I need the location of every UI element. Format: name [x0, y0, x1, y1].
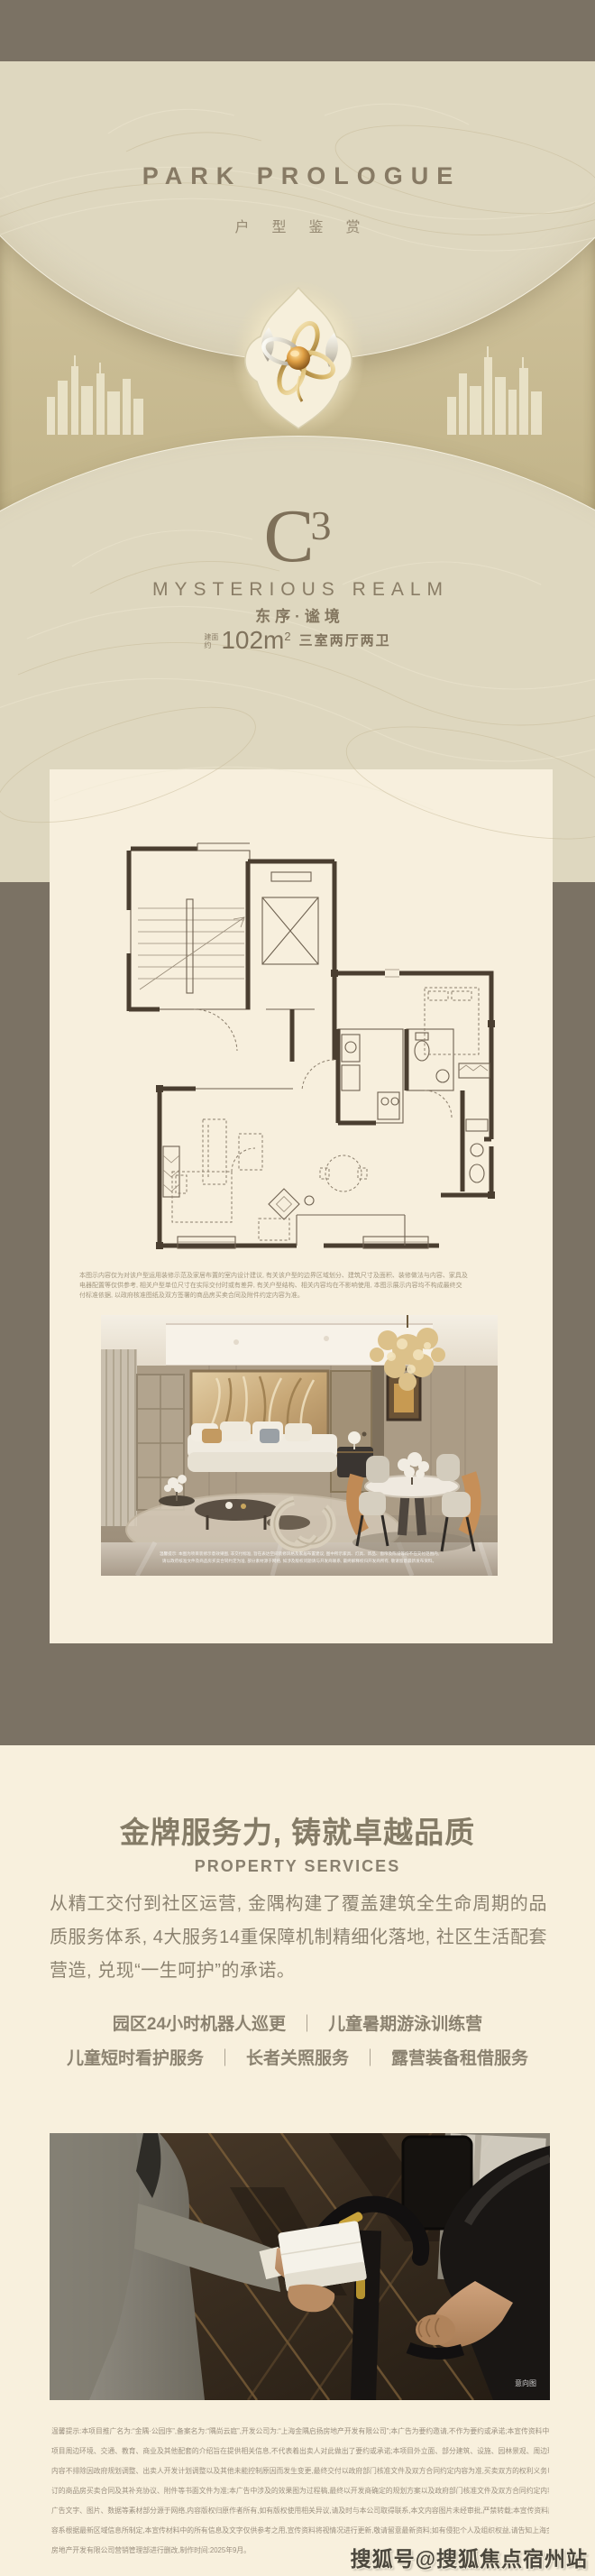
- pn-line: 付标准依据, 以政府核准图纸及双方签署的商品房买卖合同及附件约定内容为准。: [79, 1291, 525, 1301]
- services-subheading: PROPERTY SERVICES: [0, 1857, 595, 1876]
- quatrefoil-flower-icon: [231, 281, 366, 436]
- area-exponent: 2: [284, 630, 290, 642]
- svc-item: 儿童暑期游泳训练营: [286, 2015, 482, 2034]
- unit-name-cn: 东序·谧境: [0, 603, 595, 626]
- photo-caption-line2: 请以政府核准文件及商品房买卖合同约定为准, 部分素材源于网络, 如涉及版权问题请…: [162, 1558, 436, 1564]
- brand-emblem: [231, 281, 366, 436]
- area-value: 102m: [221, 628, 284, 653]
- svc-item: 园区24小时机器人巡更: [113, 2015, 286, 2034]
- unit-code-letter: C: [263, 494, 314, 578]
- floorplan-drawing: [107, 820, 495, 1255]
- legal-line: 容系根据最新区域信息所制定,本宣传材料中的所有信息及文字仅供参考之用,宣传资料将…: [51, 2521, 549, 2541]
- services-section: 金牌服务力, 铸就卓越品质 PROPERTY SERVICES 从精工交付到社区…: [0, 1745, 595, 2576]
- pn-line: 电器配置等仅供参考, 相关户型单位尺寸在实际交付时或有差异, 有关户型结构、相关…: [79, 1281, 525, 1291]
- unit-code: C3: [0, 501, 595, 571]
- legal-line: 温馨提示:本项目推广名为:“金隅·公园序”,备案名为:“隅尚云庭”,开发公司为:…: [51, 2422, 549, 2442]
- sohu-watermark: 搜狐号@搜狐焦点宿州站: [351, 2542, 588, 2572]
- unit-layout-text: 三室两厅两卫: [299, 630, 391, 649]
- photo-caption-line1: 温馨提示: 本图为项目装修示意效果图, 非交付标准, 旨在表达空间装修风格及家居…: [160, 1550, 439, 1557]
- city-skyline-right-icon: [445, 337, 546, 435]
- city-skyline-left-icon: [47, 341, 148, 435]
- services-list-row2: 儿童短时看护服务长者关照服务露营装备租借服务: [0, 2045, 595, 2069]
- service-scene-photo: 意向图: [50, 2133, 550, 2400]
- brand-title: PARK PROLOGUE: [0, 162, 595, 190]
- top-bar: [0, 0, 595, 61]
- services-heading: 金牌服务力, 铸就卓越品质: [0, 1808, 595, 1852]
- legal-line: 订的商品房买卖合同及其补充协议、附件等书面文件为准;本广告中涉及的效果图为过程稿…: [51, 2481, 549, 2501]
- photo-tag-label: 意向图: [515, 2378, 536, 2387]
- legal-line: 内容不排除因政府规划调整、出卖人开发计划调整以及其他未能控制原因而发生变更,最终…: [51, 2461, 549, 2481]
- area-prefix: 建面 约: [204, 633, 218, 649]
- svc-item: 长者关照服务: [204, 2049, 349, 2068]
- unit-area-row: 建面 约 102m 2 三室两厅两卫: [0, 628, 595, 653]
- legal-disclaimer: 温馨提示:本项目推广名为:“金隅·公园序”,备案名为:“隅尚云庭”,开发公司为:…: [51, 2422, 549, 2561]
- brand-subtitle: 户型鉴赏: [0, 215, 595, 236]
- hero-section: PARK PROLOGUE 户型鉴赏 C3 MYSTERIOUS REALM 东…: [0, 61, 595, 882]
- svc-item: 露营装备租借服务: [349, 2049, 528, 2068]
- svc-item: 儿童短时看护服务: [67, 2049, 204, 2068]
- services-list-row1: 园区24小时机器人巡更儿童暑期游泳训练营: [0, 2010, 595, 2035]
- unit-code-number: 3: [311, 502, 332, 548]
- legal-line: 项目周边环境、交通、教育、商业及其他配套的介绍旨在提供相关信息,不代表着出卖人对…: [51, 2442, 549, 2461]
- floorplan-disclaimer: 本图示内容仅为对该户型运用装修示范及家居布置的室内设计建议, 有关该户型的边界区…: [79, 1271, 525, 1301]
- promo-page: PARK PROLOGUE 户型鉴赏 C3 MYSTERIOUS REALM 东…: [0, 0, 595, 2576]
- pn-line: 本图示内容仅为对该户型运用装修示范及家居布置的室内设计建议, 有关该户型的边界区…: [79, 1271, 525, 1281]
- unit-name-en: MYSTERIOUS REALM: [0, 579, 595, 601]
- living-room-photo: 温馨提示: 本图为项目装修示意效果图, 非交付标准, 旨在表达空间装修风格及家居…: [101, 1315, 498, 1576]
- legal-line: 广告文字、图片、数据等素材部分源于网络,内容版权归原作者所有,如有版权使用相关异…: [51, 2501, 549, 2521]
- services-paragraph: 从精工交付到社区运营, 金隅构建了覆盖建筑全生命周期的品质服务体系, 4大服务1…: [50, 1888, 547, 1988]
- floorplan-card: 本图示内容仅为对该户型运用装修示范及家居布置的室内设计建议, 有关该户型的边界区…: [50, 769, 553, 1643]
